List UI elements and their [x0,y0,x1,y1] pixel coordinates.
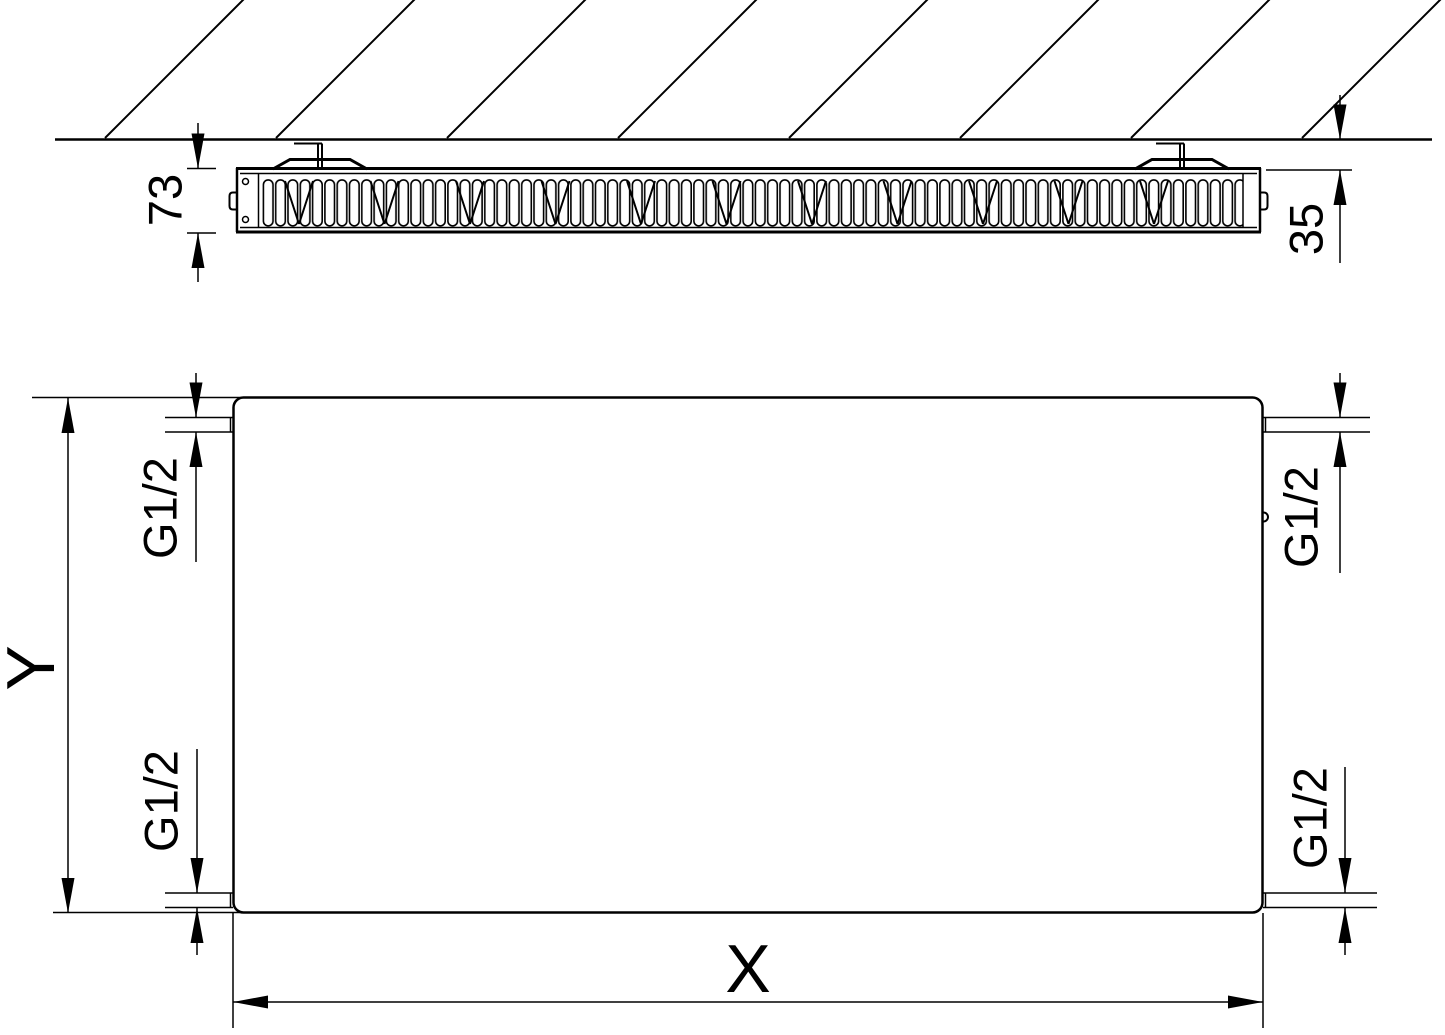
radiator-front-panel [234,398,1263,913]
dimension-thread-bottom-right: G1/2 [1284,767,1352,955]
front-view: Y X G1/2 G1/2 [0,373,1377,1028]
wall-hatching [105,0,1441,138]
dim-arrow-down [62,878,75,913]
dim-arrow-up [192,233,205,268]
dimension-wall-distance-35: 35 [1266,95,1352,263]
thread-label: G1/2 [134,457,187,559]
wall-distance-label: 35 [1280,203,1333,255]
air-vent-bump [1264,513,1269,522]
dim-arrow-down [190,383,203,418]
dim-arrow-up [1334,432,1347,467]
radiator-top-view-body [230,168,1268,232]
mounting-bracket-right [1135,144,1229,170]
connection-stub-top-right [1263,418,1370,433]
dim-arrow-down [191,858,204,893]
mounting-bracket-left [273,144,367,170]
end-cap-screw [243,179,249,185]
width-label: X [725,931,770,1007]
end-cap-screw [243,217,249,223]
dim-arrow-down [1339,858,1352,893]
convector-fins [262,179,1243,227]
drawing-canvas: 73 35 [0,0,1445,1035]
dimension-thread-top-left: G1/2 [134,373,203,562]
thread-label: G1/2 [135,750,188,852]
end-cap-right [1243,168,1268,232]
radiator-technical-drawing: 73 35 [0,0,1445,1035]
dimension-height-Y: Y [0,398,243,914]
end-cap-left [230,168,259,232]
dim-arrow-down [1334,383,1347,418]
connection-stub-bottom-right [1263,893,1377,908]
connection-stub-top-left [165,418,233,433]
thread-label: G1/2 [1284,767,1337,869]
dimension-thread-top-right: G1/2 [1275,373,1347,573]
dim-arrow-right [1228,996,1263,1009]
top-view: 73 35 [55,0,1441,282]
dimension-depth-73: 73 [139,123,217,282]
dim-arrow-up [62,398,75,433]
dim-arrow-down [192,134,205,169]
dim-arrow-left [233,996,268,1009]
connection-stub-bottom-left [165,893,233,908]
dimension-thread-bottom-left: G1/2 [135,749,204,955]
dimension-width-X: X [233,913,1263,1028]
dim-arrow-up [190,432,203,467]
depth-label: 73 [139,174,192,226]
dim-arrow-down [1334,105,1347,140]
thread-label: G1/2 [1275,466,1328,568]
dim-arrow-up [1339,908,1352,943]
height-label: Y [0,645,69,690]
dim-arrow-up [1334,170,1347,205]
